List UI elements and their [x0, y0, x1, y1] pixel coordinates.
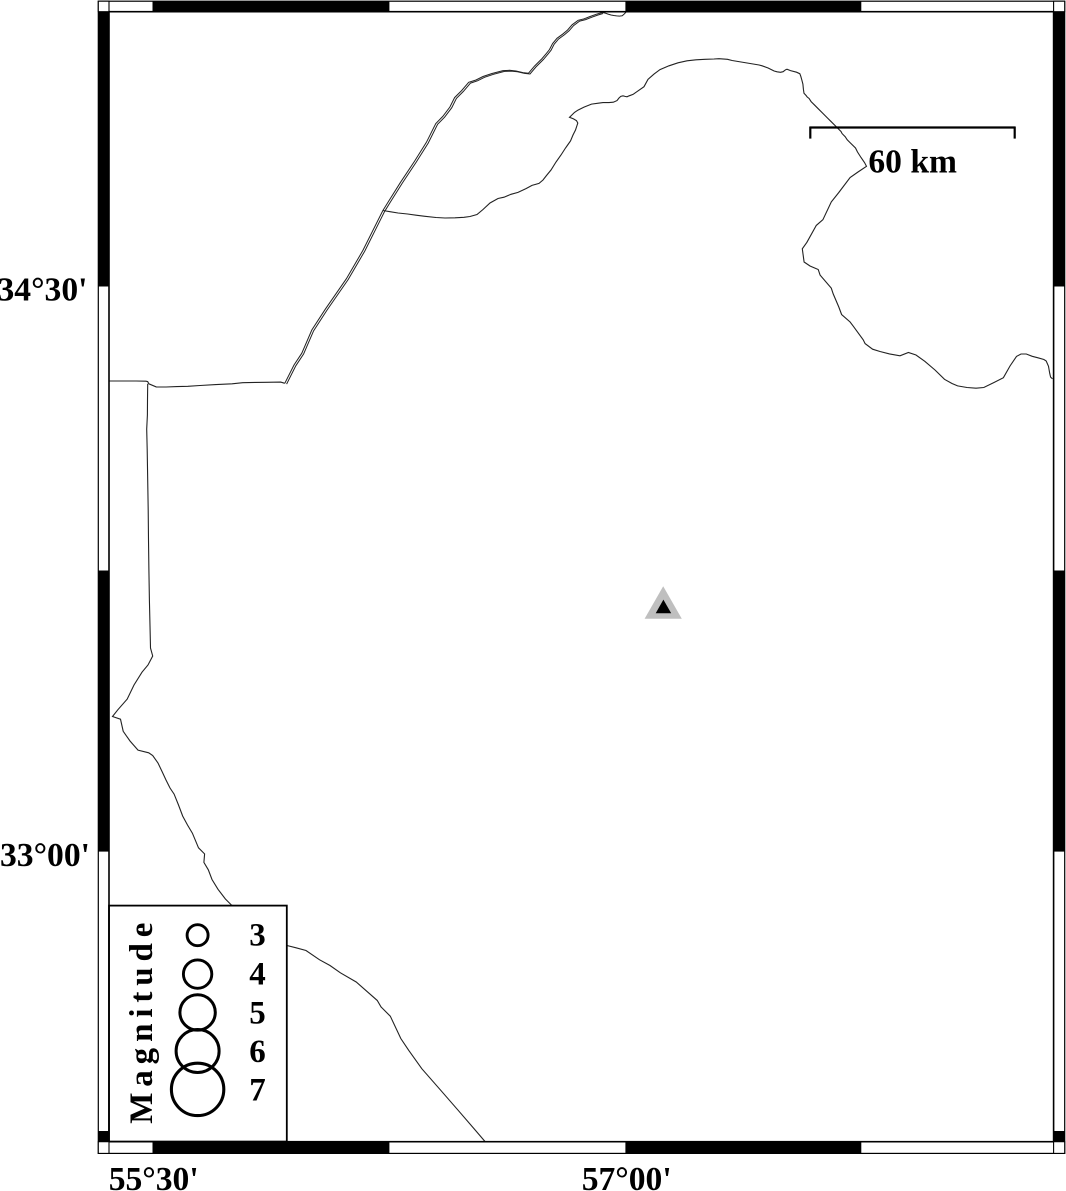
svg-text:7: 7 — [249, 1073, 266, 1109]
svg-text:Magnitude: Magnitude — [124, 917, 160, 1124]
svg-text:6: 6 — [249, 1034, 266, 1070]
svg-text:33°00': 33°00' — [0, 837, 90, 874]
svg-text:55°30': 55°30' — [109, 1161, 199, 1191]
svg-text:3: 3 — [249, 918, 266, 954]
svg-text:60 km: 60 km — [868, 143, 957, 180]
svg-text:4: 4 — [249, 957, 266, 993]
svg-text:57°00': 57°00' — [582, 1161, 672, 1191]
svg-text:34°30': 34°30' — [0, 271, 88, 308]
svg-text:5: 5 — [249, 995, 266, 1031]
